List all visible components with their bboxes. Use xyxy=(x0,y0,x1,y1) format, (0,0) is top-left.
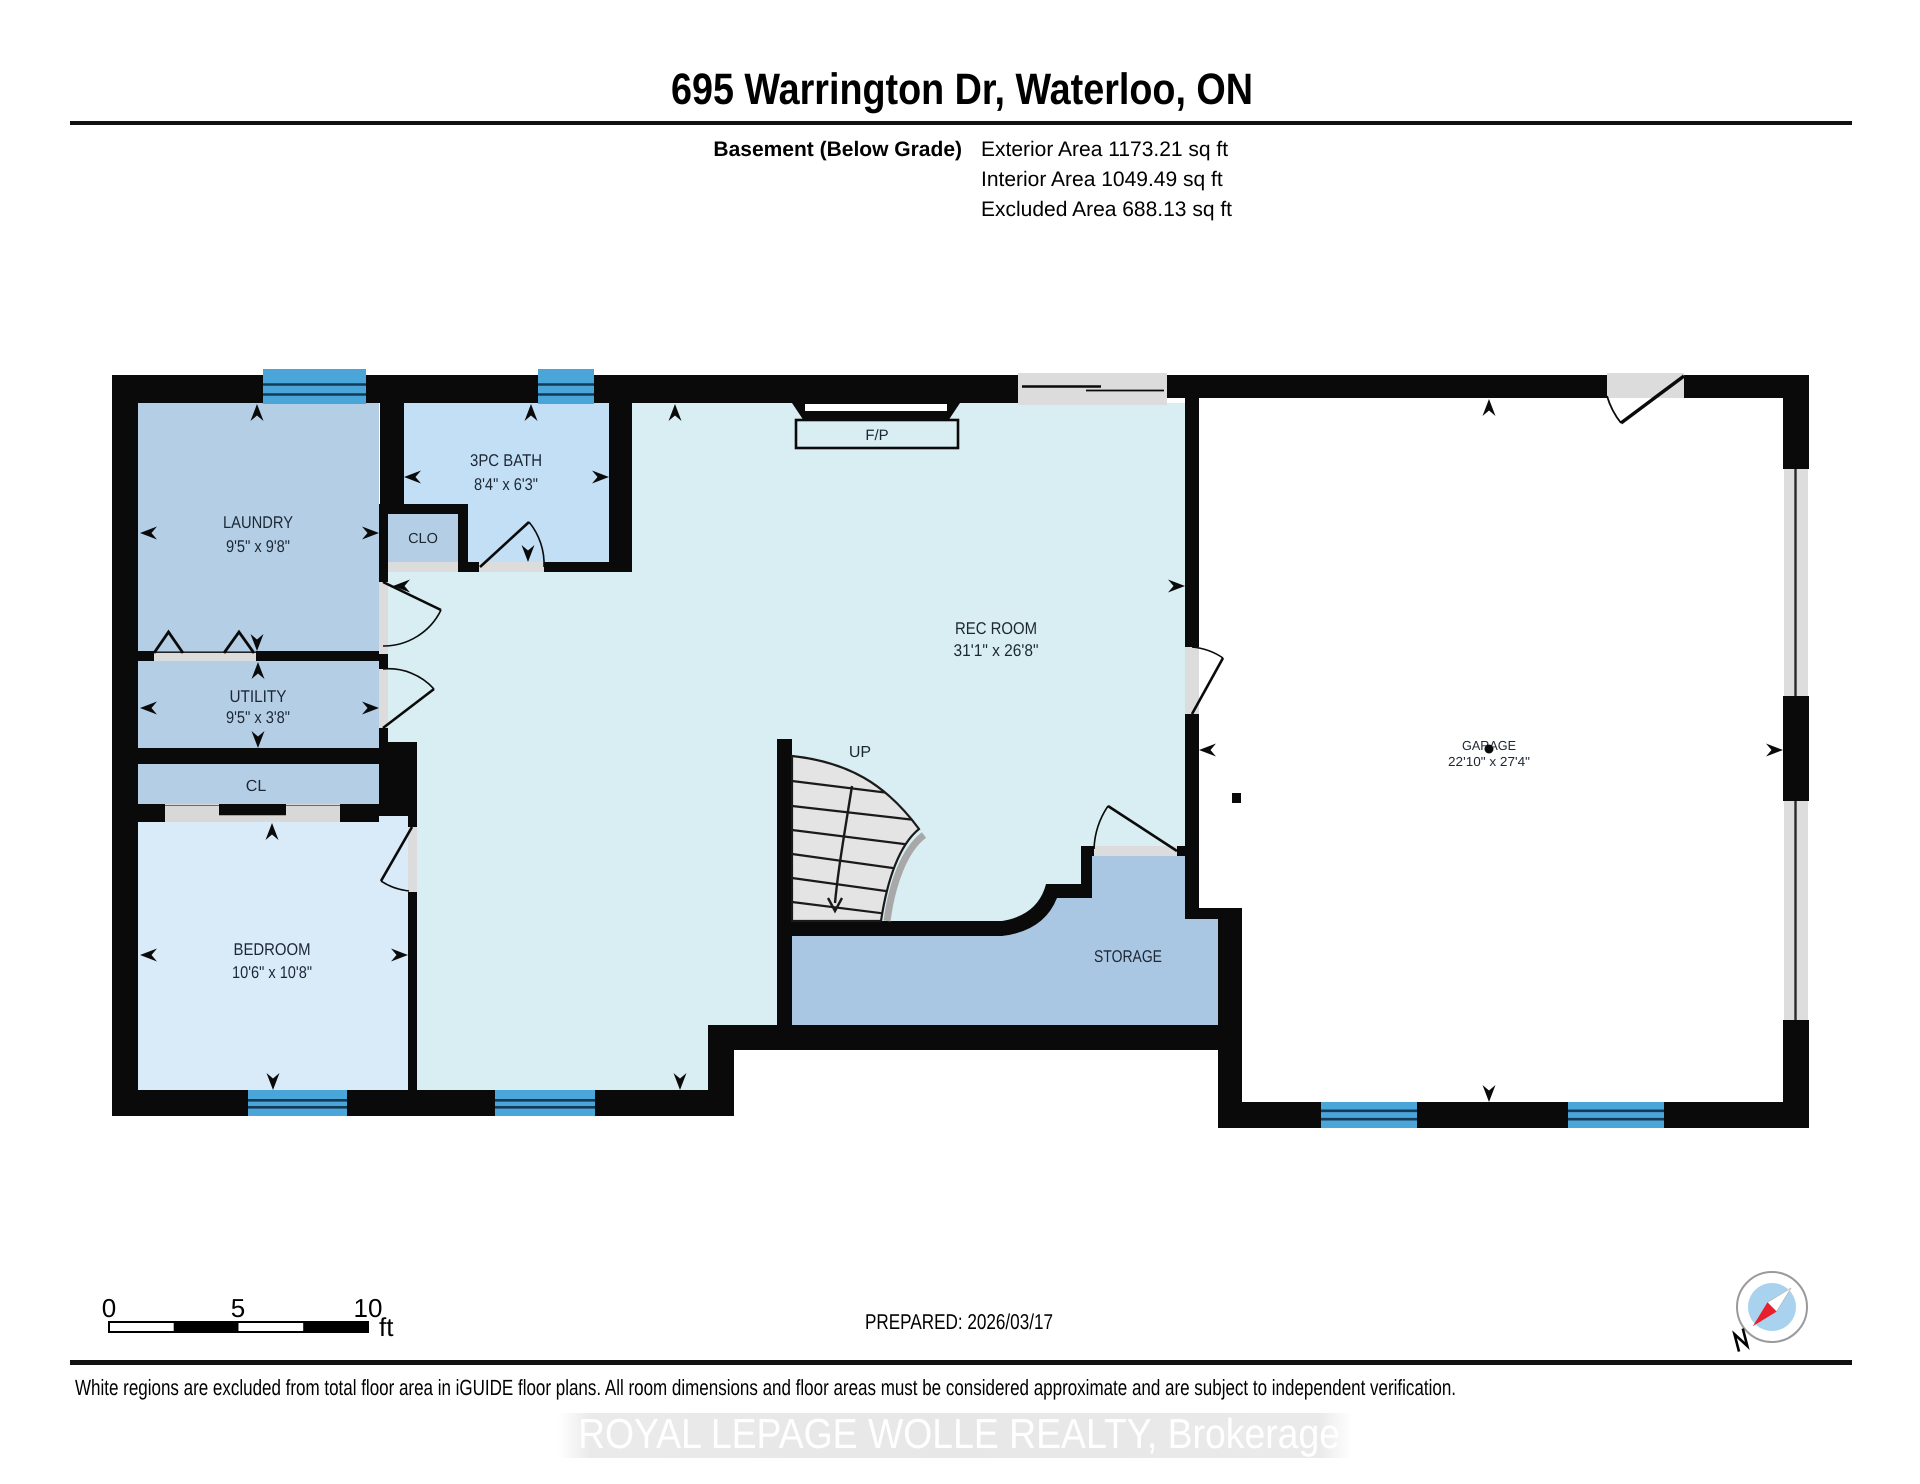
svg-text:BEDROOM: BEDROOM xyxy=(234,940,311,959)
svg-text:22'10" x 27'4": 22'10" x 27'4" xyxy=(1448,754,1530,769)
svg-text:0: 0 xyxy=(102,1293,116,1323)
svg-text:Exterior Area 1173.21 sq ft: Exterior Area 1173.21 sq ft xyxy=(981,138,1228,161)
svg-text:PREPARED: 2026/03/17: PREPARED: 2026/03/17 xyxy=(865,1310,1053,1334)
svg-text:8'4" x 6'3": 8'4" x 6'3" xyxy=(474,475,538,494)
svg-text:9'5" x 3'8": 9'5" x 3'8" xyxy=(226,708,290,727)
svg-text:REC ROOM: REC ROOM xyxy=(955,619,1037,638)
svg-text:CL: CL xyxy=(246,778,267,795)
svg-text:UP: UP xyxy=(849,744,871,761)
svg-text:ft: ft xyxy=(379,1312,394,1342)
svg-text:UTILITY: UTILITY xyxy=(230,687,287,706)
svg-text:Excluded Area 688.13 sq ft: Excluded Area 688.13 sq ft xyxy=(981,198,1232,221)
svg-text:LAUNDRY: LAUNDRY xyxy=(223,513,293,532)
svg-text:10'6" x 10'8": 10'6" x 10'8" xyxy=(232,963,312,982)
svg-text:9'5" x 9'8": 9'5" x 9'8" xyxy=(226,537,290,556)
svg-text:CLO: CLO xyxy=(408,531,438,547)
svg-text:5: 5 xyxy=(231,1293,245,1323)
svg-text:Basement (Below Grade): Basement (Below Grade) xyxy=(713,138,962,161)
svg-text:White regions are excluded fro: White regions are excluded from total fl… xyxy=(75,1375,1456,1400)
svg-text:31'1" x 26'8": 31'1" x 26'8" xyxy=(954,641,1039,660)
svg-text:STORAGE: STORAGE xyxy=(1094,947,1162,966)
svg-text:Interior Area 1049.49 sq ft: Interior Area 1049.49 sq ft xyxy=(981,168,1223,191)
svg-text:3PC BATH: 3PC BATH xyxy=(470,451,542,470)
svg-text:ROYAL LEPAGE WOLLE REALTY, Bro: ROYAL LEPAGE WOLLE REALTY, Brokerage xyxy=(578,1410,1340,1457)
svg-text:F/P: F/P xyxy=(865,427,888,444)
svg-text:695 Warrington Dr, Waterloo, O: 695 Warrington Dr, Waterloo, ON xyxy=(671,65,1253,114)
